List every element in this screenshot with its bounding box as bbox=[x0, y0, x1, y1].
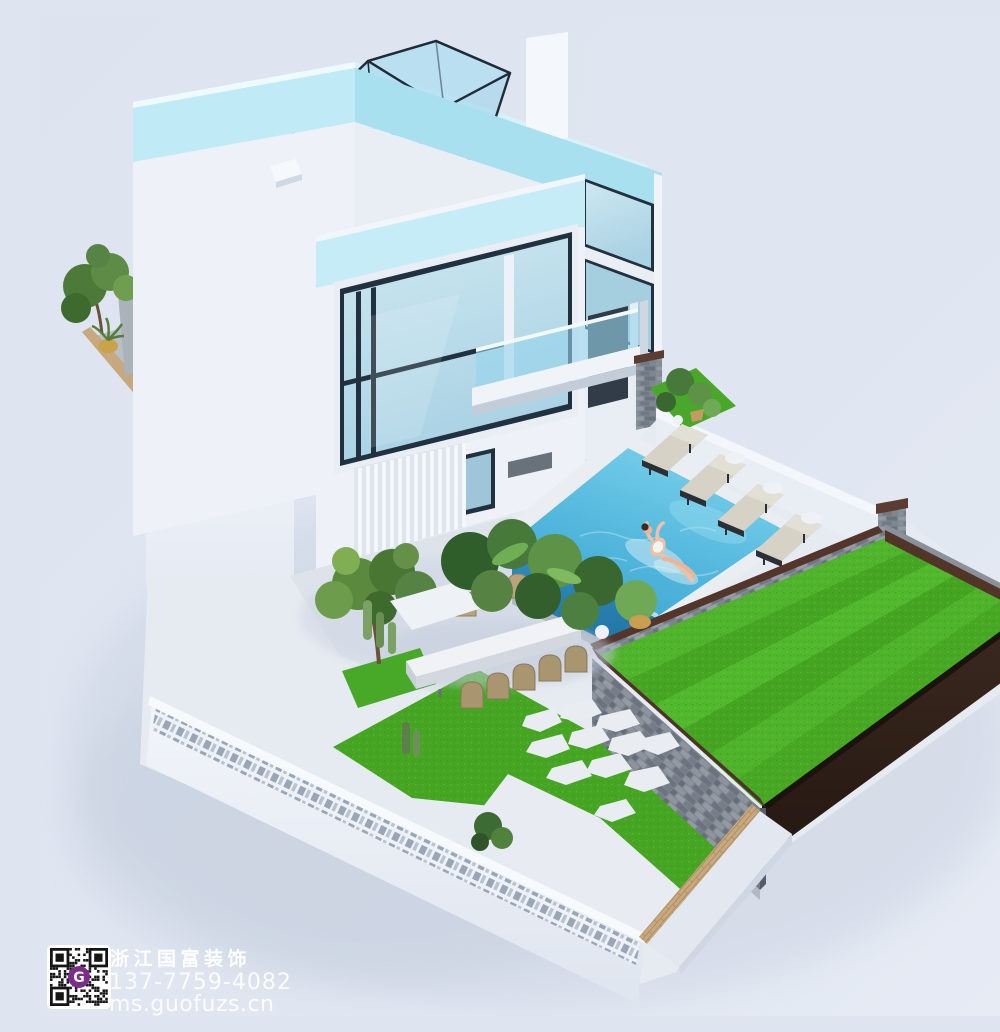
side-table bbox=[801, 512, 821, 524]
qr-code: G bbox=[47, 945, 111, 1009]
website: ms.guofuzs.cn bbox=[109, 992, 274, 1016]
hair bbox=[641, 523, 648, 530]
stair-shaft bbox=[526, 32, 582, 146]
qr-logo-letter: G bbox=[73, 970, 85, 986]
side-table bbox=[763, 482, 783, 494]
render-canvas: G 浙江国富装饰 137-7759-4082 ms.guofuzs.cn bbox=[40, 16, 1000, 1016]
company-name: 浙江国富装饰 bbox=[110, 947, 251, 970]
architectural-rendering: G 浙江国富装饰 137-7759-4082 ms.guofuzs.cn bbox=[40, 16, 1000, 1016]
stone-ball bbox=[595, 625, 609, 639]
gold-pot bbox=[629, 615, 651, 629]
side-table bbox=[725, 452, 745, 464]
